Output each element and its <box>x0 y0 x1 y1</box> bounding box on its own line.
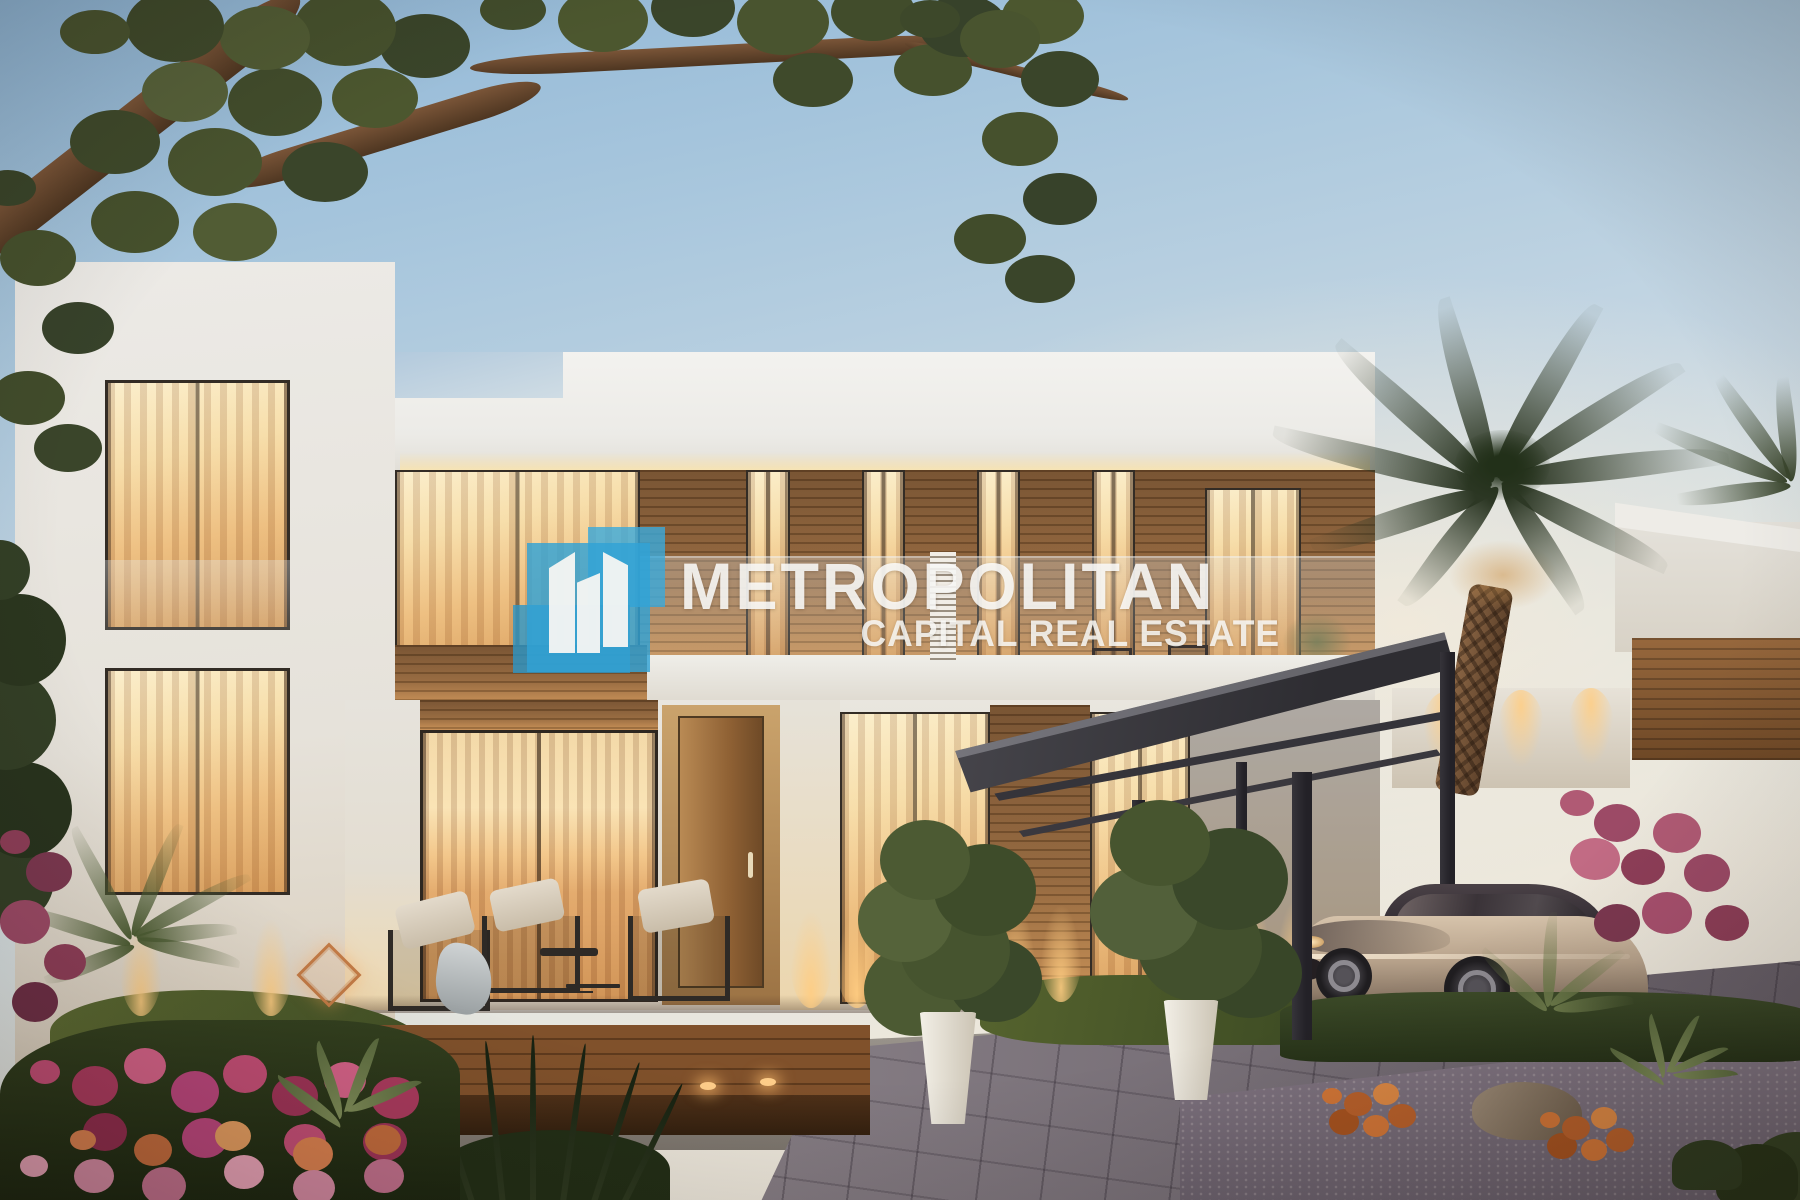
villa-rendering: METROPOLITAN CAPITAL REAL ESTATE <box>0 0 1800 1200</box>
watermark-subtitle: CAPITAL REAL ESTATE <box>704 616 1280 652</box>
logo-skyscraper <box>549 552 575 653</box>
logo-skyscraper <box>603 552 628 647</box>
watermark: METROPOLITAN CAPITAL REAL ESTATE <box>0 0 1800 1200</box>
logo-skyscraper <box>577 573 600 653</box>
watermark-title: METROPOLITAN <box>680 555 1280 619</box>
